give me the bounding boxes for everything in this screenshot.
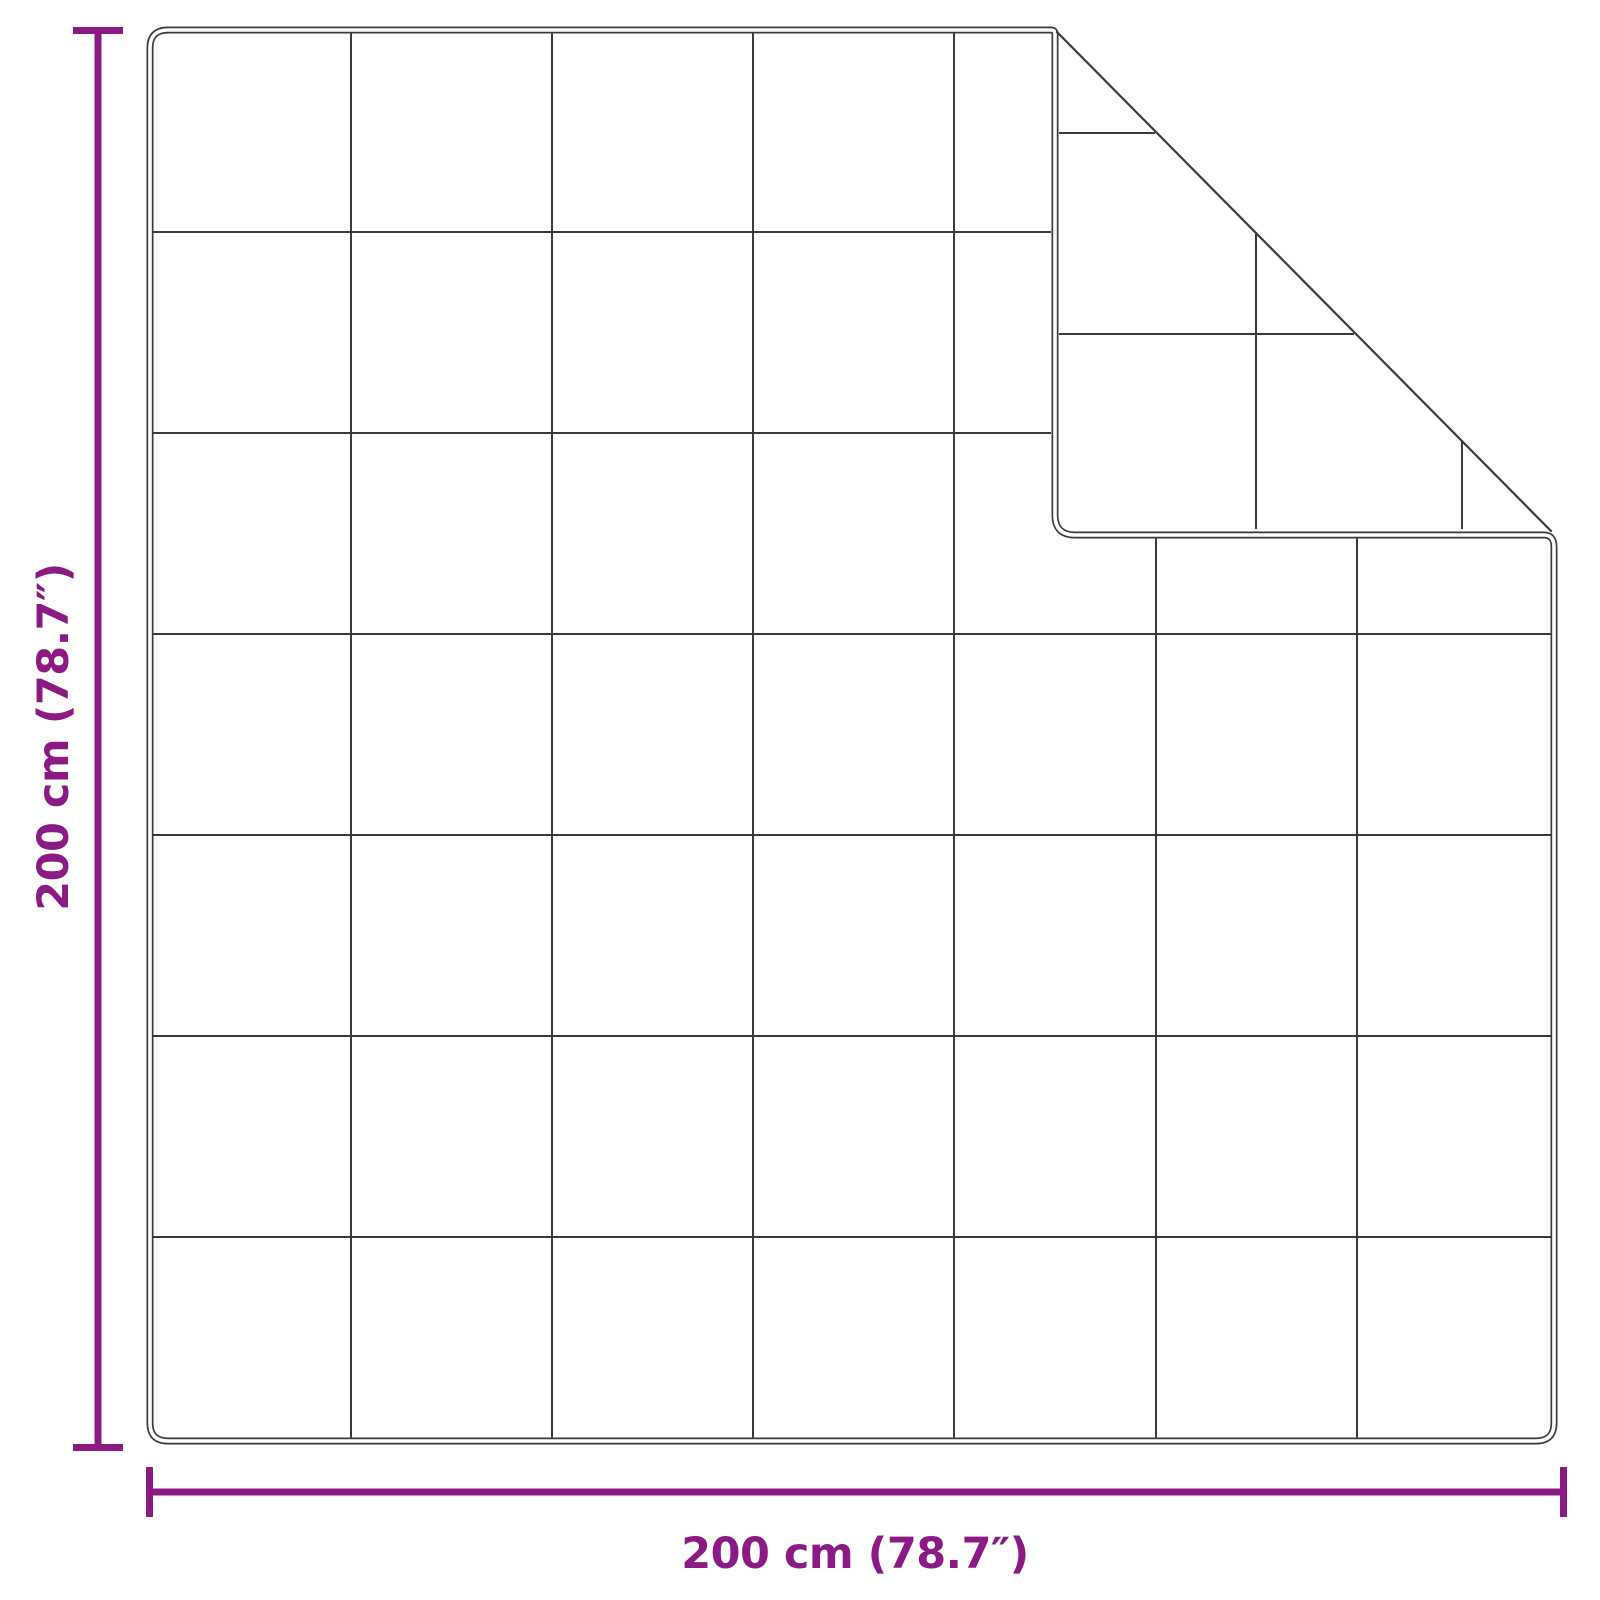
height-dimension-line [95, 30, 102, 1448]
height-dimension-bottom-cap [73, 1444, 123, 1451]
blanket-drawing [150, 30, 1554, 1441]
width-label: 200 cm (78.7″) [681, 1529, 1029, 1579]
height-label: 200 cm (78.7″) [29, 563, 79, 911]
height-dimension: 200 cm (78.7″) [29, 27, 123, 1451]
width-dimension-right-cap [1560, 1467, 1567, 1517]
blanket-dimension-diagram: 200 cm (78.7″) 200 cm (78.7″) [0, 0, 1600, 1600]
width-dimension-left-cap [146, 1467, 153, 1517]
blanket-outline [150, 30, 1554, 1441]
blanket-outline-piping [150, 30, 1554, 1441]
width-dimension: 200 cm (78.7″) [146, 1467, 1567, 1579]
diagram-canvas: 200 cm (78.7″) 200 cm (78.7″) [0, 0, 1600, 1600]
width-dimension-line [146, 1489, 1567, 1496]
dimension-annotations: 200 cm (78.7″) 200 cm (78.7″) [29, 27, 1567, 1579]
height-dimension-top-cap [73, 27, 123, 34]
fold-crease-line [1057, 32, 1551, 531]
quilt-grid-front [153, 33, 1551, 1438]
quilt-grid-flap [1059, 133, 1462, 529]
